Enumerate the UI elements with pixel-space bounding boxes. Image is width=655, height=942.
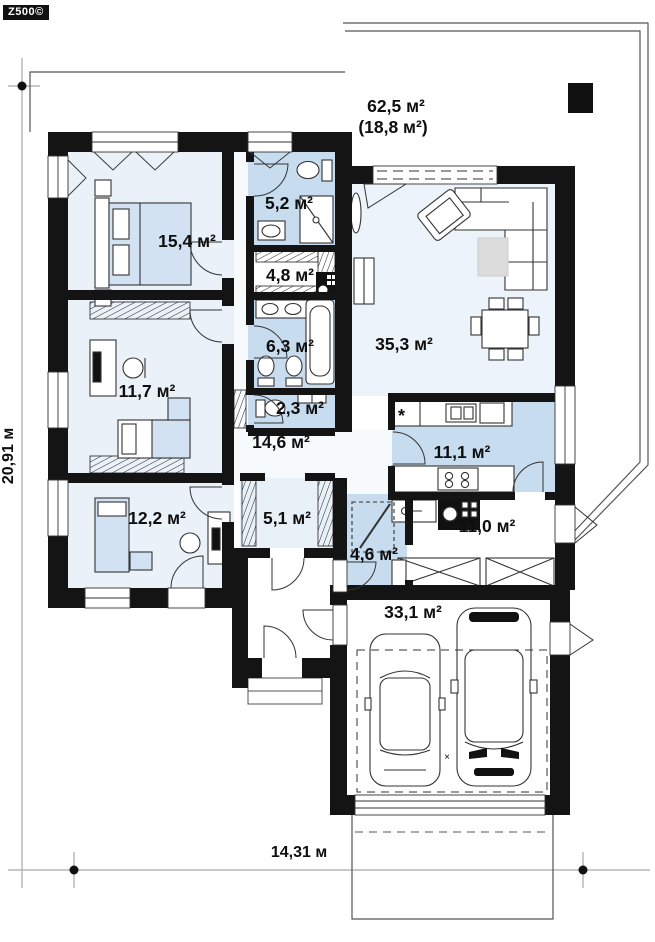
room-area-boiler: 4,6 м²: [350, 544, 398, 564]
toilet-main-bath-1: [258, 356, 274, 386]
room-area-garage: 33,1 м²: [384, 602, 442, 622]
room-area-bedroom-master: 15,4 м²: [158, 231, 216, 251]
rug: [478, 238, 508, 276]
floor-plan-canvas: 20,91 м 14,31 м 62,5 м² (18,8 м²): [0, 0, 655, 942]
fridge-symbol: *: [398, 406, 405, 426]
kitchen-cooktop: [392, 466, 514, 492]
dimension-height-label: 20,91 м: [0, 428, 17, 484]
storage-crates: [398, 558, 554, 586]
room-area-bedroom-third: 12,2 м²: [128, 508, 186, 528]
car-left: [365, 634, 445, 786]
garage-center-mark: ×: [444, 752, 450, 763]
sliding-door: [373, 166, 497, 184]
vanity-double-sink: [256, 300, 308, 318]
utility-sink: [392, 500, 436, 522]
dimension-width-label: 14,31 м: [271, 844, 327, 861]
room-area-wardrobe: 4,8 м²: [266, 265, 314, 285]
room-area-corridor: 5,1 м²: [263, 508, 311, 528]
room-area-wc: 2,3 м²: [276, 398, 324, 418]
kitchen-counter-top: [392, 400, 512, 426]
terrace-column: [568, 83, 593, 113]
tv-cabinet: [354, 258, 374, 304]
room-area-hall: 14,6 м²: [252, 432, 310, 452]
room-area-bathroom-main: 6,3 м²: [266, 336, 314, 356]
toilet-main-bath-2: [286, 356, 302, 386]
room-area-bathroom-small: 5,2 м²: [265, 193, 313, 213]
brand-logo: Z500©: [3, 5, 49, 20]
radiator: [351, 193, 361, 233]
room-area-utility: 11,0 м²: [459, 516, 516, 536]
sink-small-bath: [258, 221, 285, 240]
room-area-bedroom-second: 11,7 м²: [119, 381, 176, 401]
room-area-kitchen: 11,1 м²: [434, 442, 491, 462]
room-area-living: 35,3 м²: [375, 334, 433, 354]
floor-plan-drawing: 20,91 м 14,31 м 62,5 м² (18,8 м²): [0, 0, 655, 942]
car-right: [451, 608, 537, 786]
terrace-area-label: 62,5 м²: [367, 96, 425, 116]
terrace-covered-area-label: (18,8 м²): [358, 117, 427, 137]
